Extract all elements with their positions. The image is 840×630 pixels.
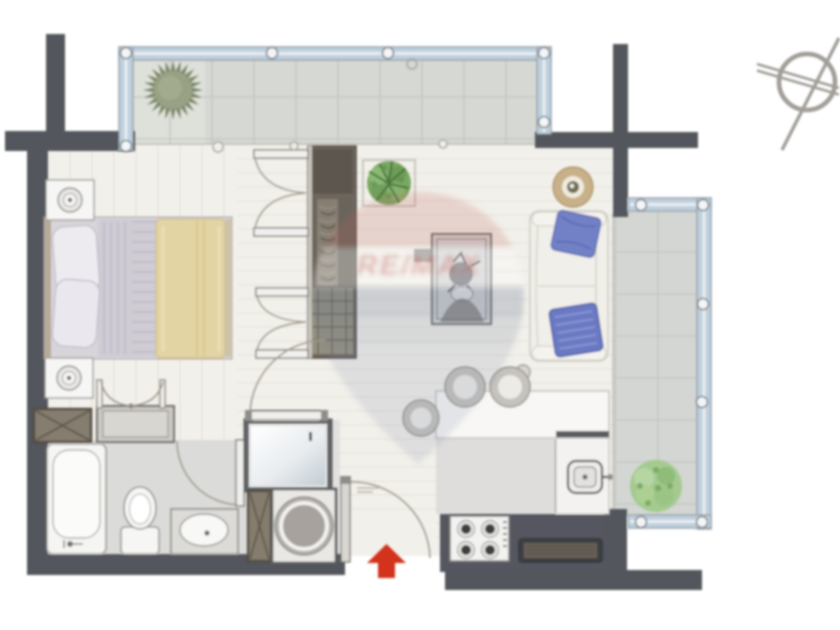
svg-text:RE/MAX: RE/MAX: [357, 250, 482, 282]
